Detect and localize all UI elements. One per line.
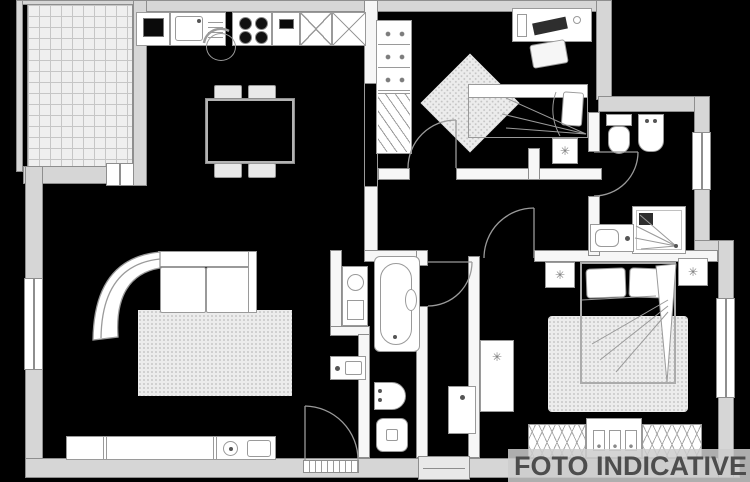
master-bedroom-window bbox=[716, 298, 735, 398]
toilet-2-tank bbox=[606, 114, 632, 126]
radiator-valve bbox=[335, 366, 340, 371]
balcony-french-door bbox=[106, 163, 134, 186]
desk-keyboard bbox=[532, 17, 568, 36]
wall-hall-left bbox=[364, 186, 378, 258]
tv-icon bbox=[223, 441, 238, 456]
washbasin-storage bbox=[347, 300, 364, 320]
wall-stub-bedroom1 bbox=[528, 148, 540, 180]
toilet bbox=[376, 418, 408, 452]
kitchen-faucet bbox=[197, 19, 201, 23]
stove-burner bbox=[255, 17, 268, 30]
wardrobe-hanger-section bbox=[378, 22, 410, 91]
plant-icon: ✳ bbox=[481, 351, 513, 363]
bidet-2-faucet bbox=[645, 119, 649, 123]
bathtub bbox=[374, 256, 420, 352]
flower-icon: ✳ bbox=[546, 269, 574, 281]
bidet-faucet bbox=[378, 398, 382, 402]
door-bathroom1 bbox=[428, 262, 472, 306]
bidet-2 bbox=[638, 114, 664, 152]
kitchen-unit-counter bbox=[272, 12, 300, 46]
tv-cabinet bbox=[66, 436, 276, 460]
washbasin-2-bowl bbox=[595, 229, 619, 247]
desk-mouse bbox=[573, 16, 581, 24]
bedroom1-nightstand: ✳ bbox=[552, 138, 578, 164]
dining-chair bbox=[248, 85, 276, 100]
desk-chair bbox=[529, 39, 569, 69]
toilet-flush bbox=[386, 429, 398, 441]
kitchen-unit-oven bbox=[136, 12, 170, 46]
wall-bathroom2-left-upper bbox=[588, 112, 600, 152]
porch-step-line bbox=[423, 468, 465, 469]
sofa-seat bbox=[206, 267, 250, 313]
counter-appliance bbox=[279, 19, 294, 29]
bidet-2-faucet bbox=[653, 119, 657, 123]
sofa-seat bbox=[160, 267, 206, 313]
double-bed-pillow bbox=[585, 267, 626, 298]
single-bed-pillow bbox=[561, 91, 584, 126]
washbasin-cabinet bbox=[342, 266, 368, 326]
door-master-bedroom bbox=[484, 208, 534, 258]
living-room-rug bbox=[138, 310, 292, 396]
media-box bbox=[247, 440, 271, 457]
dining-chair bbox=[214, 85, 242, 100]
bathtub-faucet bbox=[405, 289, 417, 311]
shower bbox=[632, 206, 686, 254]
tv-cabinet-divider bbox=[213, 437, 217, 459]
wall-bathroom1-left-lower bbox=[358, 334, 370, 458]
wall-bathroom1-left-upper bbox=[330, 250, 342, 334]
hall-cabinet-small bbox=[448, 386, 476, 434]
washbasin-2-faucet bbox=[625, 236, 630, 241]
living-room-window bbox=[24, 278, 43, 370]
wardrobe-drawer bbox=[609, 430, 621, 451]
watermark-text: FOTO INDICATIVE bbox=[514, 451, 747, 482]
dining-chair bbox=[248, 163, 276, 178]
entrance-porch bbox=[418, 456, 470, 480]
desk bbox=[512, 8, 592, 42]
oven-door bbox=[143, 18, 164, 37]
double-bed-pillow bbox=[628, 267, 669, 298]
washbasin-2 bbox=[590, 224, 634, 252]
floor-plan: ✳ ✳ ✳ ✳ bbox=[0, 0, 750, 482]
toilet-2-bowl bbox=[608, 126, 630, 154]
tv-cabinet-divider bbox=[103, 437, 107, 459]
flower-icon: ✳ bbox=[553, 145, 577, 157]
dining-table bbox=[206, 99, 294, 163]
sofa-back bbox=[158, 251, 254, 267]
stove-burner bbox=[255, 31, 268, 44]
dining-chair bbox=[214, 163, 242, 178]
bidet bbox=[374, 382, 406, 410]
hall-cabinet-knob bbox=[460, 395, 465, 400]
bathtub-drain bbox=[393, 335, 397, 339]
wardrobe-drawer-section bbox=[378, 93, 410, 152]
tv-dot bbox=[229, 447, 233, 451]
kitchen-tall-cabinet bbox=[300, 12, 332, 46]
radiator-body bbox=[345, 361, 362, 375]
wardrobe-drawer bbox=[593, 430, 605, 451]
stove-burner bbox=[239, 17, 252, 30]
double-bed bbox=[580, 262, 676, 384]
kitchen-fridge-cabinet bbox=[332, 12, 366, 46]
radiator bbox=[330, 356, 366, 380]
kitchen-stool bbox=[206, 33, 236, 61]
entrance-threshold bbox=[303, 460, 359, 473]
sofa-arm-right bbox=[248, 251, 257, 313]
bedroom1-wardrobe bbox=[376, 20, 412, 154]
shower-head bbox=[639, 213, 653, 225]
kitchen-unit-stove bbox=[232, 12, 272, 46]
wall-balcony-left-rail bbox=[16, 0, 23, 172]
washbasin-bowl bbox=[347, 274, 364, 291]
wall-bedroom1-bottom-left bbox=[378, 168, 410, 180]
hall-cabinet-tall: ✳ bbox=[480, 340, 514, 412]
bathroom2-window bbox=[692, 132, 711, 190]
master-nightstand-left: ✳ bbox=[545, 262, 575, 288]
balcony-floor bbox=[27, 4, 133, 167]
door-entrance bbox=[305, 406, 358, 460]
bidet-faucet bbox=[378, 389, 382, 393]
master-nightstand-right: ✳ bbox=[678, 258, 708, 286]
flower-icon: ✳ bbox=[679, 266, 707, 278]
wall-right-top bbox=[596, 0, 612, 100]
single-bed bbox=[468, 84, 588, 138]
desk-monitor bbox=[517, 14, 527, 37]
stove-burner bbox=[239, 31, 252, 44]
wardrobe-drawer bbox=[625, 430, 637, 451]
